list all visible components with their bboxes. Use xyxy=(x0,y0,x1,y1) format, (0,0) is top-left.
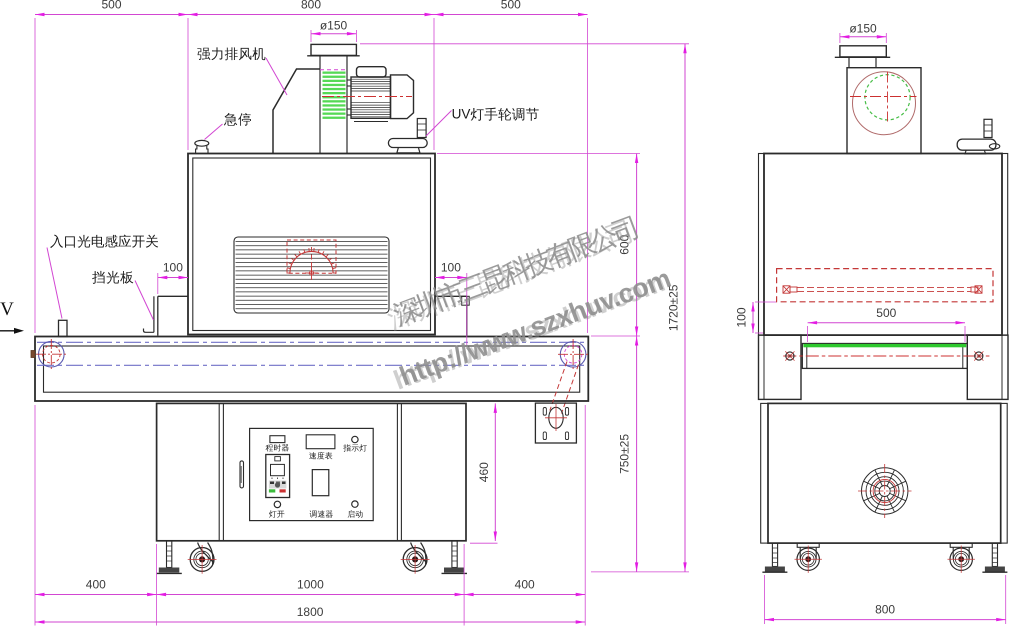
svg-text:ø150: ø150 xyxy=(849,22,877,36)
svg-text:400: 400 xyxy=(515,578,535,592)
svg-text:100: 100 xyxy=(163,261,183,275)
svg-text:1800: 1800 xyxy=(297,605,324,619)
svg-text:100: 100 xyxy=(441,261,461,275)
svg-text:100: 100 xyxy=(735,307,749,327)
svg-text:UV: UV xyxy=(452,107,471,122)
svg-text:ø150: ø150 xyxy=(320,19,348,33)
svg-text:500: 500 xyxy=(876,306,896,320)
svg-text:500: 500 xyxy=(501,0,521,12)
svg-text:400: 400 xyxy=(86,578,106,592)
svg-text:750±25: 750±25 xyxy=(617,434,631,474)
svg-text:1000: 1000 xyxy=(297,578,324,592)
svg-text:500: 500 xyxy=(101,0,121,12)
svg-text:http://www.szxhuv.com: http://www.szxhuv.com xyxy=(396,263,675,391)
svg-text:460: 460 xyxy=(477,462,491,482)
svg-text:V: V xyxy=(0,299,14,320)
svg-text:800: 800 xyxy=(301,0,321,12)
svg-text:800: 800 xyxy=(875,603,895,617)
